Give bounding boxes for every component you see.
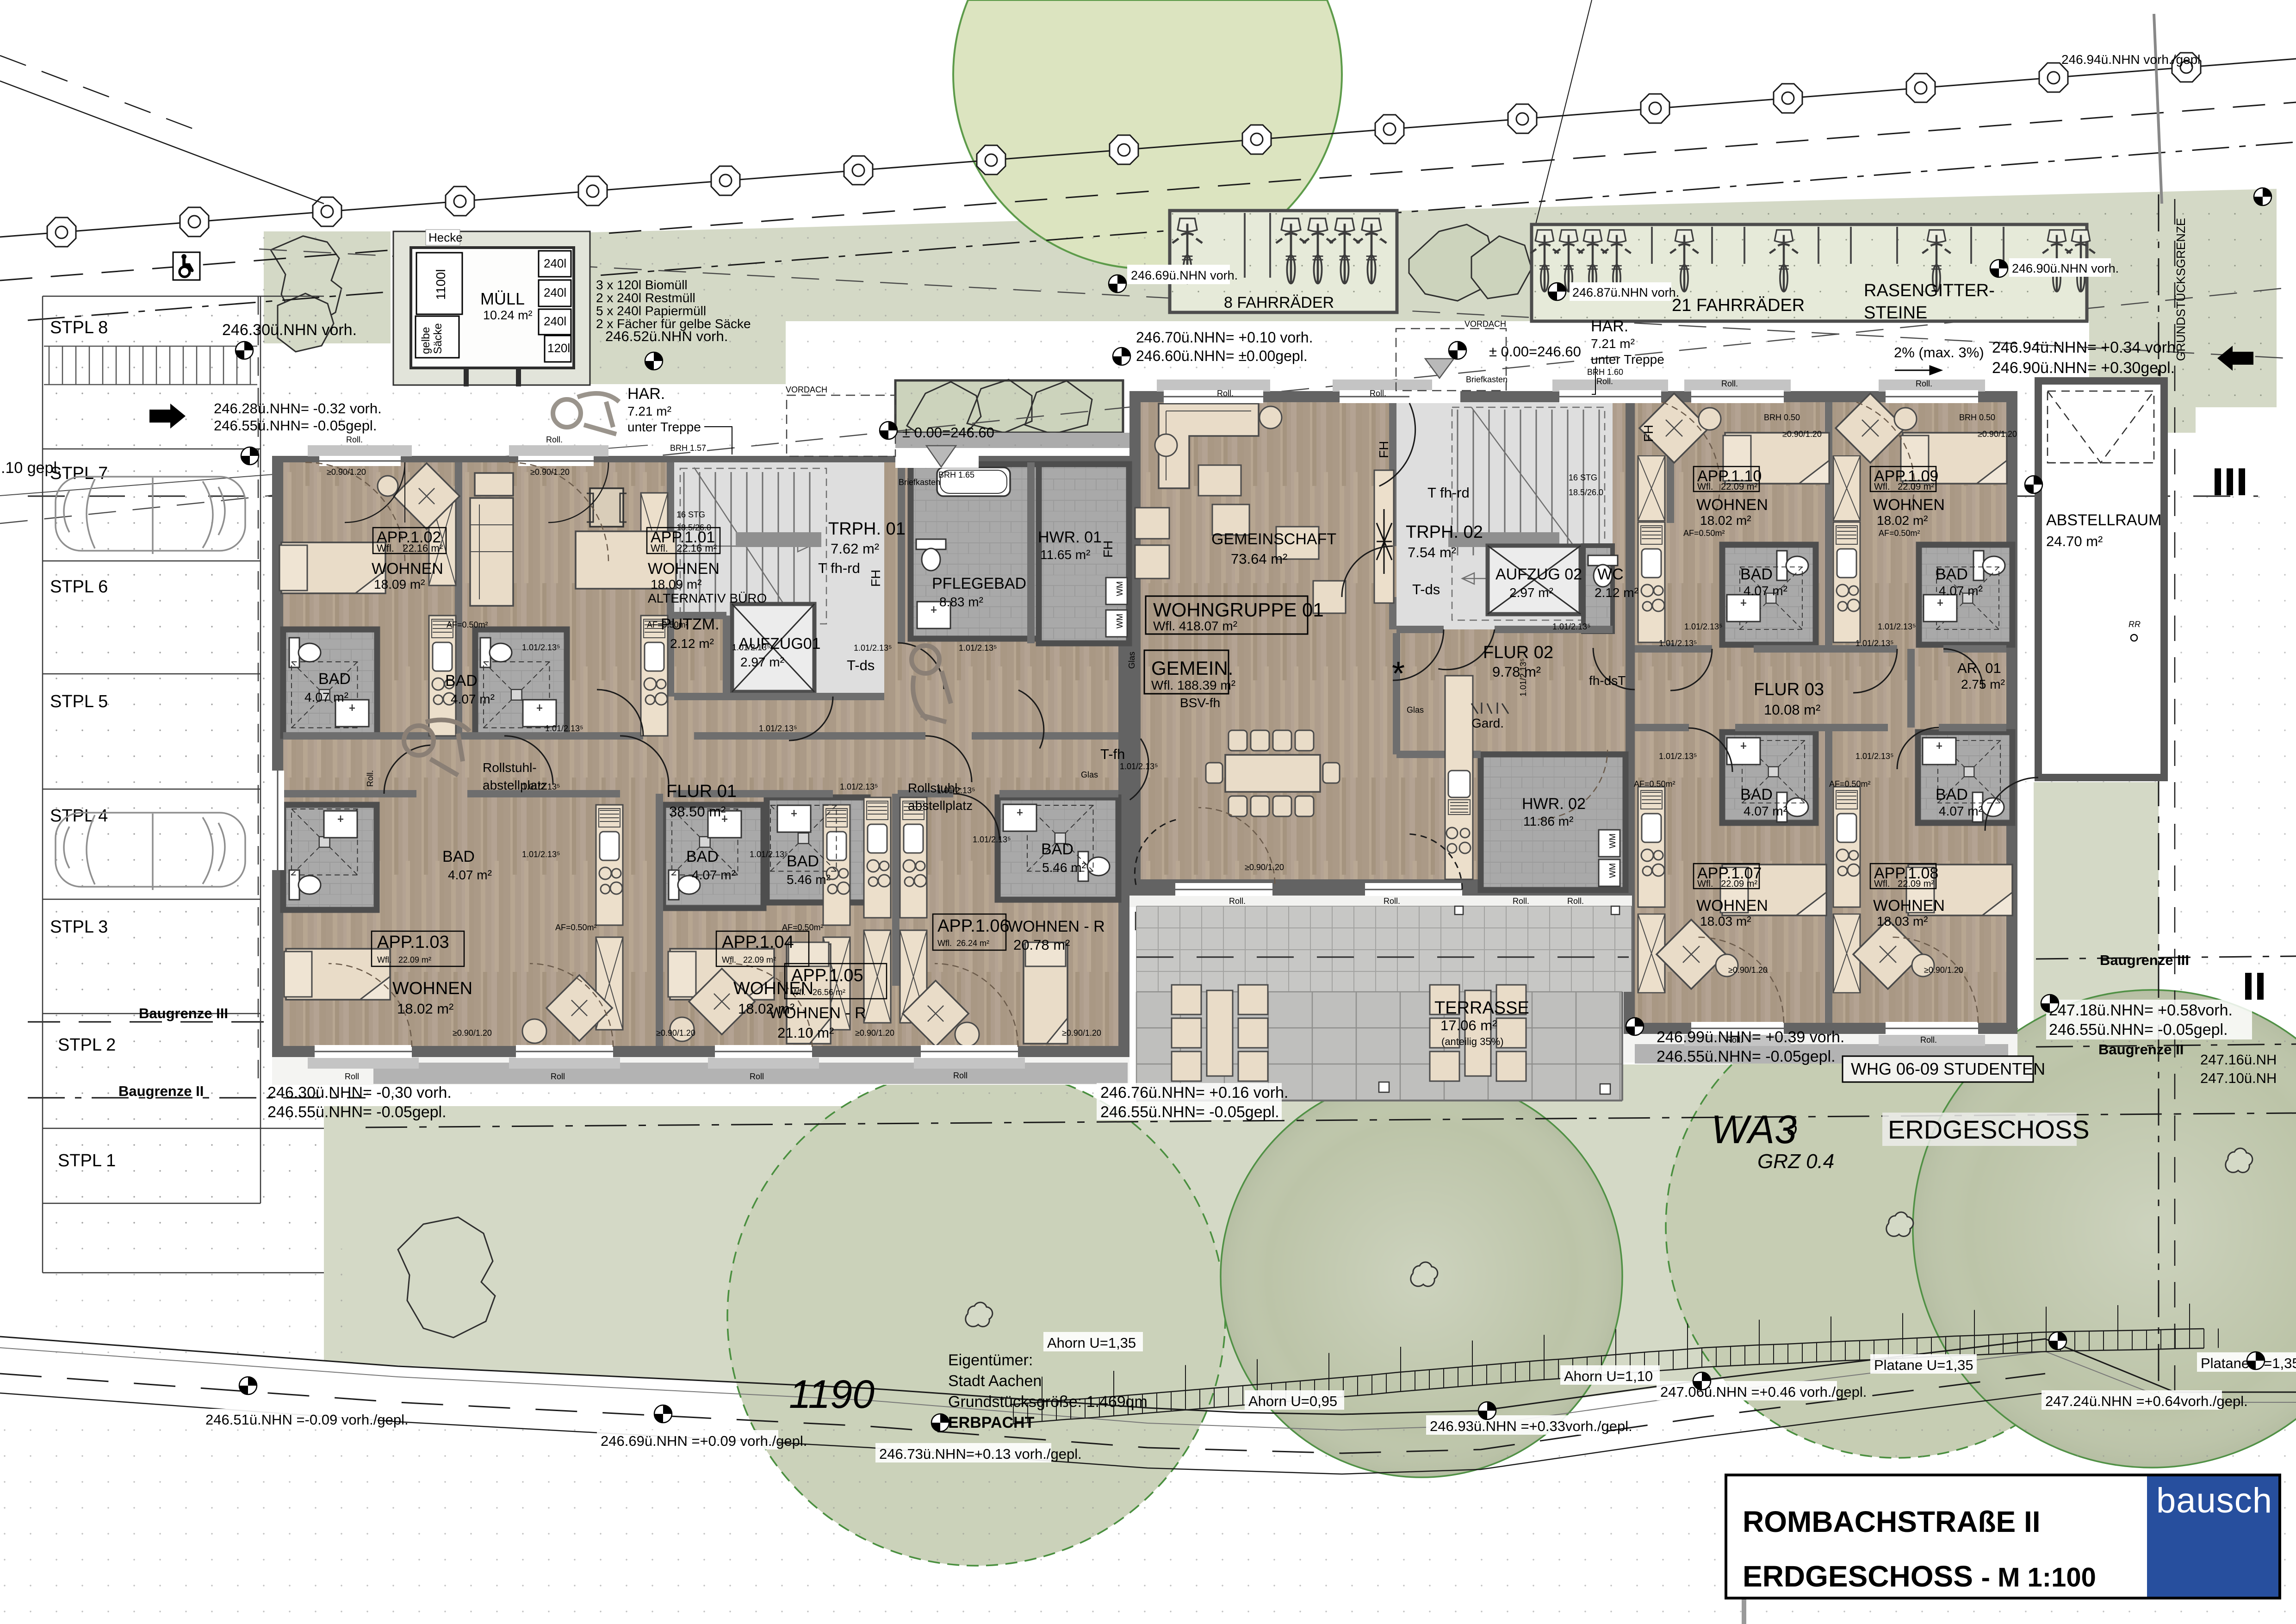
svg-text:21 FAHRRÄDER: 21 FAHRRÄDER [1672,296,1805,315]
svg-text:AF=0.50m²: AF=0.50m² [555,923,597,932]
svg-text:≥0.90/1.20: ≥0.90/1.20 [656,1028,695,1038]
svg-text:ALTERNATIV BÜRO: ALTERNATIV BÜRO [648,591,767,605]
svg-text:1.01/2.13⁵: 1.01/2.13⁵ [522,850,560,859]
svg-text:4.07 m²: 4.07 m² [1744,584,1787,598]
svg-text:Roll: Roll [551,1072,565,1081]
svg-text:ERDGESCHOSS: ERDGESCHOSS [1888,1115,2090,1144]
svg-text:10.24 m²: 10.24 m² [483,308,533,322]
svg-text:GRZ 0.4: GRZ 0.4 [1757,1150,1834,1173]
svg-text:1.01/2.13⁵: 1.01/2.13⁵ [1659,639,1697,648]
svg-text:BAD: BAD [1740,566,1773,583]
svg-text:1.01/2.13⁵: 1.01/2.13⁵ [1684,622,1723,631]
svg-text:ERBPACHT: ERBPACHT [948,1414,1035,1431]
svg-text:120l: 120l [547,341,570,355]
svg-text:1.01/2.13⁵: 1.01/2.13⁵ [840,782,878,791]
svg-text:HAR.: HAR. [1591,317,1628,335]
svg-text:1100l: 1100l [434,269,448,300]
svg-text:PFLEGEBAD: PFLEGEBAD [932,575,1026,592]
svg-text:18.5/26.0: 18.5/26.0 [1569,488,1603,497]
svg-text:BRH 0.50: BRH 0.50 [1764,413,1800,422]
svg-text:7.21 m²: 7.21 m² [1591,336,1635,351]
svg-text:AF=0.50m²: AF=0.50m² [1683,529,1725,538]
svg-text:BRH 1.65: BRH 1.65 [938,470,974,479]
svg-text:18.09 m²: 18.09 m² [374,577,425,591]
svg-text:Glas: Glas [1081,770,1098,779]
svg-text:1.01/2.13⁵: 1.01/2.13⁵ [1120,762,1158,771]
svg-text:T-ds: T-ds [1412,581,1440,597]
svg-text:(anteilig 35%): (anteilig 35%) [1441,1036,1504,1047]
svg-text:Roll.: Roll. [1229,896,1246,906]
svg-text:Baugrenze III: Baugrenze III [139,1005,228,1021]
svg-text:WOHNEN: WOHNEN [392,979,472,998]
svg-text:246.76ü.NHN= +0.16 vorh.: 246.76ü.NHN= +0.16 vorh. [1100,1084,1288,1101]
svg-text:Roll.: Roll. [1596,377,1613,386]
svg-text:11.65 m²: 11.65 m² [1040,548,1090,562]
svg-text:1.01/2.13⁵: 1.01/2.13⁵ [1519,658,1528,697]
svg-text:≥0.90/1.20: ≥0.90/1.20 [1978,429,2017,439]
svg-text:Briefkasten: Briefkasten [899,478,940,487]
svg-text:Roll.: Roll. [1721,379,1738,388]
svg-text:246.55ü.NHN= -0.05gepl.: 246.55ü.NHN= -0.05gepl. [1657,1048,1836,1065]
svg-text:246.55ü.NHN= -0.05gepl.: 246.55ü.NHN= -0.05gepl. [214,417,377,434]
svg-text:AF=0.50m²: AF=0.50m² [1634,779,1675,789]
svg-text:Ahorn U=1,10: Ahorn U=1,10 [1564,1368,1653,1384]
svg-text:246.73ü.NHN=+0.13 vorh./gepl.: 246.73ü.NHN=+0.13 vorh./gepl. [879,1446,1082,1462]
svg-text:RR: RR [2128,620,2141,629]
svg-text:Säcke: Säcke [432,323,444,354]
svg-text:246.69ü.NHN vorh.: 246.69ü.NHN vorh. [1131,268,1238,282]
svg-text:2.12 m²: 2.12 m² [670,636,714,651]
svg-text:Roll.: Roll. [546,435,563,444]
svg-text:Roll: Roll [750,1072,764,1081]
svg-text:246.99ü.NHN= +0.39 vorh.: 246.99ü.NHN= +0.39 vorh. [1657,1028,1844,1046]
svg-text:T fh-rd: T fh-rd [1427,485,1470,501]
svg-text:18.03 m²: 18.03 m² [1700,914,1751,928]
svg-text:10.08 m²: 10.08 m² [1764,702,1820,718]
svg-text:5 x 240l Papiermüll: 5 x 240l Papiermüll [596,304,706,318]
svg-text:2.75 m²: 2.75 m² [1961,677,2005,691]
svg-text:246.94ü.NHN vorh./gepl: 246.94ü.NHN vorh./gepl [2061,52,2200,67]
svg-text:BRH 1.60: BRH 1.60 [1587,367,1623,377]
svg-text:gelbe: gelbe [420,327,432,354]
svg-text:246.51ü.NHN =-0.09 vorh./gepl.: 246.51ü.NHN =-0.09 vorh./gepl. [205,1412,409,1428]
svg-text:21.10 m²: 21.10 m² [777,1025,834,1041]
svg-text:T-fh: T-fh [1100,746,1125,762]
svg-text:Roll.: Roll. [346,435,363,444]
svg-text:38.50 m²: 38.50 m² [669,803,726,820]
svg-text:Stadt Aachen: Stadt Aachen [948,1372,1042,1390]
svg-text:unter Treppe: unter Treppe [1591,352,1664,367]
svg-text:*: * [1392,655,1405,692]
svg-text:WOHNEN - R: WOHNEN - R [769,1004,866,1022]
svg-text:APP.1.05: APP.1.05 [791,966,863,985]
svg-text:BAD: BAD [787,852,819,870]
svg-text:Wfl. 22.16 m²: Wfl. 22.16 m² [651,542,717,554]
svg-text:≥0.90/1.20: ≥0.90/1.20 [1924,965,1963,975]
svg-text:FH: FH [869,570,883,587]
svg-text:GEMEIN.: GEMEIN. [1151,657,1233,679]
svg-text:STEINE: STEINE [1864,303,1927,323]
svg-text:1.01/2.13⁵: 1.01/2.13⁵ [759,724,797,733]
svg-text:240l: 240l [544,286,566,299]
svg-text:Platane U=1,35: Platane U=1,35 [1874,1357,1973,1373]
svg-text:1.01/2.13⁵: 1.01/2.13⁵ [1878,622,1916,631]
svg-text:Roll.: Roll. [366,770,375,787]
svg-text:246.69ü.NHN =+0.09 vorh./gepl.: 246.69ü.NHN =+0.09 vorh./gepl. [601,1433,807,1449]
svg-text:TRPH. 02: TRPH. 02 [1406,523,1483,542]
svg-text:BRH 0.50: BRH 0.50 [1959,413,1995,422]
svg-text:246.55ü.NHN= -0.05gepl.: 246.55ü.NHN= -0.05gepl. [1100,1103,1279,1121]
svg-text:1.01/2.13⁵: 1.01/2.13⁵ [1855,639,1894,648]
svg-text:Wfl. 22.16 m²: Wfl. 22.16 m² [377,542,443,554]
svg-text:18.5/26.0: 18.5/26.0 [676,523,711,532]
svg-text:WC: WC [1597,566,1624,583]
svg-text:2% (max. 3%): 2% (max. 3%) [1894,344,1984,361]
svg-text:VORDACH: VORDACH [1464,319,1506,329]
svg-text:Baugrenze III: Baugrenze III [2100,952,2189,968]
svg-text:247.16ü.NH: 247.16ü.NH [2200,1052,2277,1068]
svg-text:STPL 3: STPL 3 [50,917,108,937]
svg-text:4.07 m²: 4.07 m² [304,690,348,704]
svg-text:≥0.90/1.20: ≥0.90/1.20 [855,1028,894,1038]
svg-text:Wfl. 22.09 m²: Wfl. 22.09 m² [1697,879,1757,889]
svg-text:BSV-fh: BSV-fh [1180,696,1220,710]
svg-text:≥0.90/1.20: ≥0.90/1.20 [1245,863,1284,872]
svg-text:246.55ü.NHN= -0.05gepl.: 246.55ü.NHN= -0.05gepl. [267,1103,447,1121]
svg-text:BAD: BAD [442,848,475,865]
svg-text:1.01/2.13⁵: 1.01/2.13⁵ [937,786,975,795]
svg-text:BAD: BAD [1041,840,1074,858]
svg-text:4.07 m²: 4.07 m² [448,868,492,882]
svg-text:Wfl. 22.09 m²: Wfl. 22.09 m² [377,955,431,964]
svg-text:Ahorn U=0,95: Ahorn U=0,95 [1248,1393,1337,1409]
svg-text:Roll.: Roll. [1916,379,1932,388]
svg-text:Wfl. 22.09 m²: Wfl. 22.09 m² [1874,482,1934,492]
svg-text:11.86 m²: 11.86 m² [1523,814,1573,828]
svg-text:5.46 m²: 5.46 m² [787,872,831,887]
svg-text:Baugrenze II: Baugrenze II [118,1083,204,1099]
svg-text:Roll.: Roll. [1513,896,1529,906]
svg-text:247.06ü.NHN =+0.46 vorh./gepl.: 247.06ü.NHN =+0.46 vorh./gepl. [1660,1384,1867,1400]
svg-text:STPL 4: STPL 4 [50,806,108,826]
svg-text:Roll.: Roll. [1567,896,1584,906]
svg-text:4.07 m²: 4.07 m² [692,868,736,882]
svg-text:bausch: bausch [2156,1481,2272,1520]
svg-text:WOHNEN: WOHNEN [1696,496,1768,514]
svg-text:FLUR 03: FLUR 03 [1754,680,1824,699]
svg-text:1.01/2.13⁵: 1.01/2.13⁵ [545,724,583,733]
svg-text:FLUR 01: FLUR 01 [666,782,737,801]
svg-text:4.07 m²: 4.07 m² [1939,584,1983,598]
svg-text:≥0.90/1.20: ≥0.90/1.20 [1728,965,1768,975]
svg-text:Grundstücksgröße: 1.469qm: Grundstücksgröße: 1.469qm [948,1393,1148,1411]
svg-text:20.78 m²: 20.78 m² [1013,937,1070,953]
svg-text:AF=0.50m²: AF=0.50m² [1879,529,1920,538]
svg-text:unter Treppe: unter Treppe [627,420,701,434]
svg-text:Roll.: Roll. [1384,896,1400,906]
svg-text:WOHNGRUPPE 01: WOHNGRUPPE 01 [1153,599,1324,621]
svg-text:Wfl. 22.09 m²: Wfl. 22.09 m² [1697,482,1757,492]
svg-text:1.01/2.13⁵: 1.01/2.13⁵ [1552,622,1591,631]
svg-text:246.30ü.NHN vorh.: 246.30ü.NHN vorh. [222,321,357,339]
svg-text:AF=0.50m²: AF=0.50m² [647,620,689,629]
svg-text:o: o [1787,1119,1797,1139]
svg-text:Glas: Glas [1127,652,1136,669]
svg-text:STPL 1: STPL 1 [58,1151,116,1170]
svg-text:≥0.90/1.20: ≥0.90/1.20 [327,467,366,477]
svg-text:1.01/2.13⁵: 1.01/2.13⁵ [973,835,1011,844]
svg-text:Rollstuhl-: Rollstuhl- [483,760,537,775]
svg-text:7.62 m²: 7.62 m² [831,541,879,557]
svg-text:246.28ü.NHN= -0.32 vorh.: 246.28ü.NHN= -0.32 vorh. [214,400,382,417]
svg-text:APP.1.06: APP.1.06 [937,916,1010,936]
svg-text:246.55ü.NHN= -0.05gepl.: 246.55ü.NHN= -0.05gepl. [2049,1021,2228,1039]
svg-text:9.78 m²: 9.78 m² [1492,664,1541,680]
svg-text:16 STG: 16 STG [1569,473,1597,482]
svg-text:WOHNEN: WOHNEN [1873,496,1945,514]
svg-text:GEMEINSCHAFT: GEMEINSCHAFT [1211,530,1336,548]
svg-text:MÜLL: MÜLL [480,289,525,308]
svg-text:17.06 m²: 17.06 m² [1440,1017,1497,1033]
svg-text:18.09 m²: 18.09 m² [651,577,702,591]
svg-text:24.70 m²: 24.70 m² [2046,533,2103,549]
svg-text:240l: 240l [544,314,566,328]
svg-text:Wfl. 26.56 m²: Wfl. 26.56 m² [791,988,845,997]
svg-text:HWR. 01: HWR. 01 [1038,529,1102,546]
svg-text:WOHNEN: WOHNEN [1873,897,1945,915]
svg-text:WHG 06-09 STUDENTEN: WHG 06-09 STUDENTEN [1851,1059,2045,1078]
svg-text:1.01/2.13⁵: 1.01/2.13⁵ [1659,752,1697,761]
svg-text:246.87ü.NHN vorh.: 246.87ü.NHN vorh. [1572,286,1679,299]
svg-text:WA3: WA3 [1711,1108,1797,1152]
svg-text:246.60ü.NHN= ±0.00gepl.: 246.60ü.NHN= ±0.00gepl. [1136,348,1308,364]
svg-text:WOHNEN: WOHNEN [648,560,720,578]
svg-text:240l: 240l [544,256,566,270]
svg-text:HWR. 02: HWR. 02 [1522,795,1586,813]
svg-text:3 x 120l Biomüll: 3 x 120l Biomüll [596,278,688,292]
svg-text:≥0.90/1.20: ≥0.90/1.20 [1782,429,1822,439]
svg-text:WOHNEN - R: WOHNEN - R [1008,918,1105,935]
svg-text:2.12 m²: 2.12 m² [1595,585,1638,600]
svg-text:Ahorn U=1,35: Ahorn U=1,35 [1047,1335,1136,1351]
svg-text:BAD: BAD [1740,786,1773,803]
svg-text:Wfl. 418.07 m²: Wfl. 418.07 m² [1153,619,1237,633]
svg-text:T-ds: T-ds [847,657,875,673]
svg-text:Baugrenze II: Baugrenze II [2098,1041,2184,1058]
svg-text:18.02 m²: 18.02 m² [397,1001,453,1017]
svg-text:FH: FH [1641,425,1656,442]
svg-text:1.01/2.13⁵: 1.01/2.13⁵ [750,850,788,859]
svg-text:2.97 m²: 2.97 m² [1509,585,1553,600]
svg-text:STPL 2: STPL 2 [58,1035,116,1055]
svg-text:≥0.90/1.20: ≥0.90/1.20 [1062,1028,1101,1038]
svg-text:Roll.: Roll. [1370,389,1386,398]
svg-text:73.64 m²: 73.64 m² [1231,551,1287,567]
svg-text:ROMBACHSTRAßE II: ROMBACHSTRAßE II [1743,1505,2041,1538]
svg-text:HAR.: HAR. [627,385,665,403]
svg-text:1.01/2.13⁵: 1.01/2.13⁵ [732,643,770,652]
svg-text:VORDACH: VORDACH [786,385,827,394]
svg-text:Eigentümer:: Eigentümer: [948,1351,1033,1369]
svg-text:.10 gepl.: .10 gepl. [1,459,61,477]
svg-text:2 x 240l Restmüll: 2 x 240l Restmüll [596,291,695,305]
svg-text:BAD: BAD [1936,786,1968,803]
svg-text:BRH 1.57: BRH 1.57 [670,443,706,453]
svg-text:BAD: BAD [1936,566,1968,583]
svg-text:ABSTELLRAUM: ABSTELLRAUM [2046,511,2161,529]
svg-text:247.18ü.NHN= +0.58vorh.: 247.18ü.NHN= +0.58vorh. [2049,1002,2233,1019]
svg-text:AR. 01: AR. 01 [1957,660,2001,676]
svg-text:AF=0.50m²: AF=0.50m² [1829,779,1871,789]
svg-text:247.24ü.NHN =+0.64vorh./gepl.: 247.24ü.NHN =+0.64vorh./gepl. [2045,1393,2248,1409]
svg-text:246.90ü.NHN= +0.30gepl.: 246.90ü.NHN= +0.30gepl. [1992,359,2175,377]
svg-text:246.93ü.NHN =+0.33vorh./gepl.: 246.93ü.NHN =+0.33vorh./gepl. [1430,1418,1632,1434]
svg-text:4.07 m²: 4.07 m² [451,692,495,706]
svg-text:AF=0.50m²: AF=0.50m² [782,923,824,932]
svg-text:BAD: BAD [318,670,351,688]
svg-text:STPL 5: STPL 5 [50,692,108,711]
svg-text:2.97 m²: 2.97 m² [740,655,784,669]
svg-text:246.30ü.NHN= -0,30 vorh.: 246.30ü.NHN= -0,30 vorh. [267,1084,452,1101]
svg-text:≥0.90/1.20: ≥0.90/1.20 [453,1028,492,1038]
svg-text:247.10ü.NH: 247.10ü.NH [2200,1070,2277,1086]
svg-text:246.90ü.NHN vorh.: 246.90ü.NHN vorh. [2012,261,2119,275]
svg-text:Glas: Glas [1407,705,1424,715]
svg-text:TERRASSE: TERRASSE [1434,998,1529,1018]
svg-text:1.01/2.13⁵: 1.01/2.13⁵ [522,782,560,791]
svg-text:246.52ü.NHN vorh.: 246.52ü.NHN vorh. [605,328,728,344]
svg-text:1.01/2.13⁵: 1.01/2.13⁵ [959,643,997,653]
svg-text:APP.1.03: APP.1.03 [377,933,449,952]
svg-text:T fh-rd: T fh-rd [818,560,860,576]
svg-text:18.02 m²: 18.02 m² [1877,513,1928,528]
svg-text:1190: 1190 [789,1372,875,1417]
svg-text:Briefkasten: Briefkasten [1466,375,1508,384]
svg-text:FH: FH [1377,441,1391,458]
svg-text:Wfl. 22.09 m²: Wfl. 22.09 m² [722,955,776,964]
svg-text:5.46 m²: 5.46 m² [1042,860,1086,875]
svg-text:TRPH. 01: TRPH. 01 [828,519,906,539]
svg-text:WOHNEN: WOHNEN [372,560,443,578]
svg-text:APP.1.04: APP.1.04 [722,933,794,952]
svg-text:± 0.00=246.60: ± 0.00=246.60 [1489,343,1581,360]
svg-text:BAD: BAD [445,672,478,690]
svg-text:AF=0.50m²: AF=0.50m² [447,620,488,629]
svg-text:Roll: Roll [345,1072,359,1081]
svg-text:≥0.90/1.20: ≥0.90/1.20 [530,467,570,477]
svg-text:246.70ü.NHN= +0.10 vorh.: 246.70ü.NHN= +0.10 vorh. [1136,329,1313,346]
svg-text:Roll.: Roll. [1920,1035,1937,1045]
svg-text:STPL 8: STPL 8 [50,318,108,337]
svg-text:Roll: Roll [953,1071,968,1080]
svg-text:18.03 m²: 18.03 m² [1877,914,1928,928]
svg-text:16 STG: 16 STG [676,510,705,519]
svg-text:RASENGITTER-: RASENGITTER- [1864,281,1995,300]
svg-text:4.07 m²: 4.07 m² [1939,804,1983,818]
svg-text:1.01/2.13⁵: 1.01/2.13⁵ [1855,752,1894,761]
svg-text:Wfl. 26.24 m²: Wfl. 26.24 m² [937,939,989,948]
svg-text:18.02 m²: 18.02 m² [1700,513,1751,528]
svg-text:AUFZUG 02: AUFZUG 02 [1496,566,1582,583]
svg-text:Wfl. 188.39 m²: Wfl. 188.39 m² [1151,678,1235,692]
svg-text:7.54 m²: 7.54 m² [1408,544,1456,560]
svg-text:7.21 m²: 7.21 m² [627,404,671,418]
svg-text:± 0.00=246.60: ± 0.00=246.60 [902,424,994,441]
svg-text:8.83 m²: 8.83 m² [939,595,983,609]
svg-text:BAD: BAD [686,848,719,865]
svg-text:Hecke: Hecke [428,230,463,244]
svg-text:STPL 6: STPL 6 [50,577,108,597]
svg-text:1.01/2.13⁵: 1.01/2.13⁵ [522,643,560,652]
svg-text:246.94ü.NHN= +0.34 vorh.: 246.94ü.NHN= +0.34 vorh. [1992,339,2180,356]
svg-text:ERDGESCHOSS - M 1:100: ERDGESCHOSS - M 1:100 [1743,1560,2096,1593]
svg-text:4.07 m²: 4.07 m² [1744,804,1787,818]
svg-text:FH: FH [1101,541,1115,558]
svg-text:WOHNEN: WOHNEN [1696,897,1768,915]
svg-text:Wfl. 22.09 m²: Wfl. 22.09 m² [1874,879,1934,889]
svg-text:1.01/2.13⁵: 1.01/2.13⁵ [854,643,892,653]
svg-text:Gard.: Gard. [1471,716,1504,730]
svg-text:8 FAHRRÄDER: 8 FAHRRÄDER [1224,294,1334,311]
svg-text:fh-dsT: fh-dsT [1589,673,1626,688]
svg-text:Roll.: Roll. [1217,389,1234,398]
svg-text:abstellplatz: abstellplatz [908,798,973,813]
